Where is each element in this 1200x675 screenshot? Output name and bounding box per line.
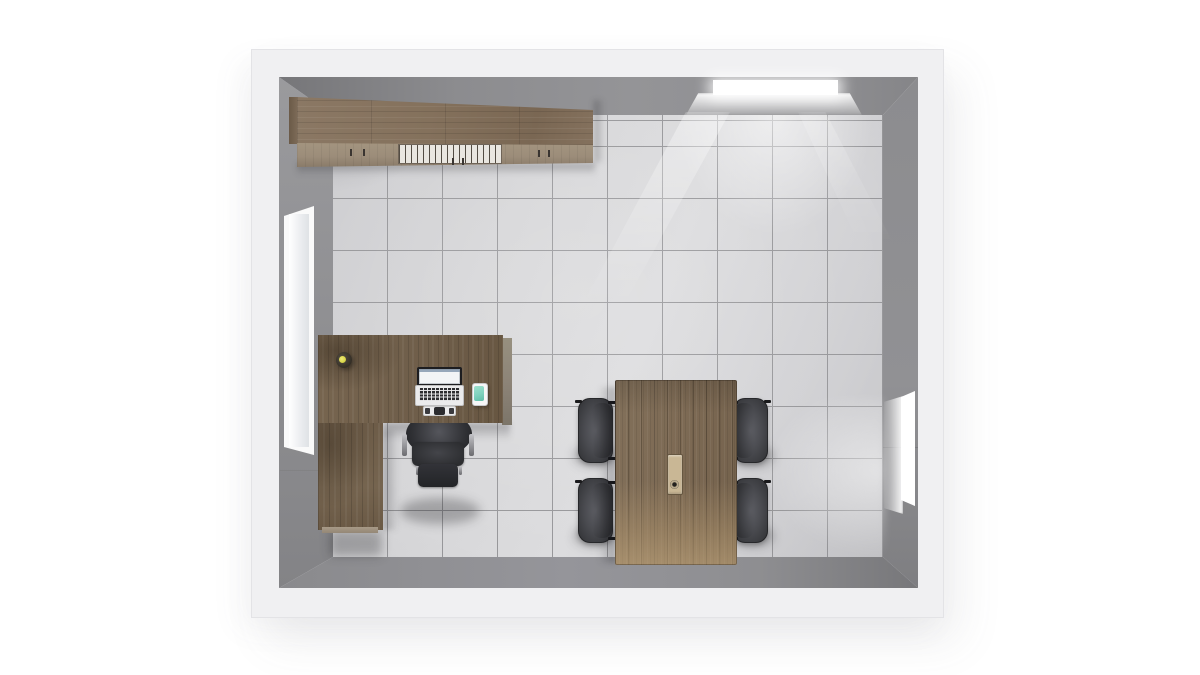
meeting-chair-top-right — [733, 398, 768, 463]
chair-adjust-lever — [764, 480, 771, 483]
smartphone — [472, 383, 488, 406]
meeting-table-shadow — [598, 387, 616, 563]
desk-return-pedestal — [318, 423, 383, 530]
desk-top-surface — [318, 335, 503, 423]
meeting-chair-seat — [734, 483, 754, 538]
desk-end-panel — [502, 338, 512, 425]
meeting-chair-bottom-right — [733, 478, 768, 543]
laptop-speaker-left — [425, 408, 430, 414]
chair-armrest-left — [402, 434, 407, 456]
chair-floor-shadow — [400, 498, 480, 524]
chair-armrest-right — [469, 434, 474, 456]
l-shaped-desk — [310, 330, 520, 565]
desk-task-chair — [398, 410, 498, 535]
laptop-screen — [417, 367, 462, 386]
cabinet-door-handle — [462, 158, 464, 165]
right-window-wall-glow — [884, 396, 903, 514]
chair-adjust-lever — [575, 480, 582, 483]
cabinet-side-panel — [289, 97, 298, 144]
cabinet-door-handle — [350, 149, 352, 156]
laptop-trackpad — [434, 407, 445, 415]
left-window-pane — [289, 214, 309, 447]
table-tray — [667, 454, 683, 495]
lamp-shade-accent — [339, 356, 346, 363]
right-window-floor-pool — [765, 398, 885, 558]
top-window-wall-glow — [686, 93, 862, 115]
cabinet-door-handle — [363, 149, 365, 156]
wall-cabinet — [286, 92, 606, 182]
laptop-keyboard-keys — [419, 388, 460, 401]
desk-return-front-edge — [322, 527, 378, 533]
cabinet-end-shadow — [594, 100, 604, 162]
chair-adjust-lever — [764, 400, 771, 403]
laptop — [415, 366, 465, 416]
desk-return-shadow — [383, 430, 398, 530]
smartphone-screen — [474, 386, 484, 401]
cabinet-top-face — [297, 95, 593, 145]
render-canvas — [0, 0, 1200, 675]
top-wall-window — [713, 80, 838, 95]
chair-adjust-lever — [575, 400, 582, 403]
chair-headrest — [418, 464, 458, 487]
cabinet-door-handle — [452, 158, 454, 165]
desk-return-floor-shadow — [330, 530, 382, 556]
meeting-chair-seat — [734, 403, 754, 458]
laptop-speaker-right — [449, 408, 454, 414]
tray-bottle — [670, 480, 679, 489]
cabinet-door-handle — [548, 150, 550, 157]
chair-headrest-bracket — [459, 466, 462, 475]
cabinet-door-handle — [538, 150, 540, 157]
right-wall-window — [901, 391, 915, 506]
meeting-area — [570, 375, 780, 575]
cabinet-open-shelf-grille — [398, 144, 502, 164]
desk-lamp — [336, 352, 352, 368]
chair-seat — [412, 442, 464, 466]
meeting-table — [615, 380, 737, 565]
